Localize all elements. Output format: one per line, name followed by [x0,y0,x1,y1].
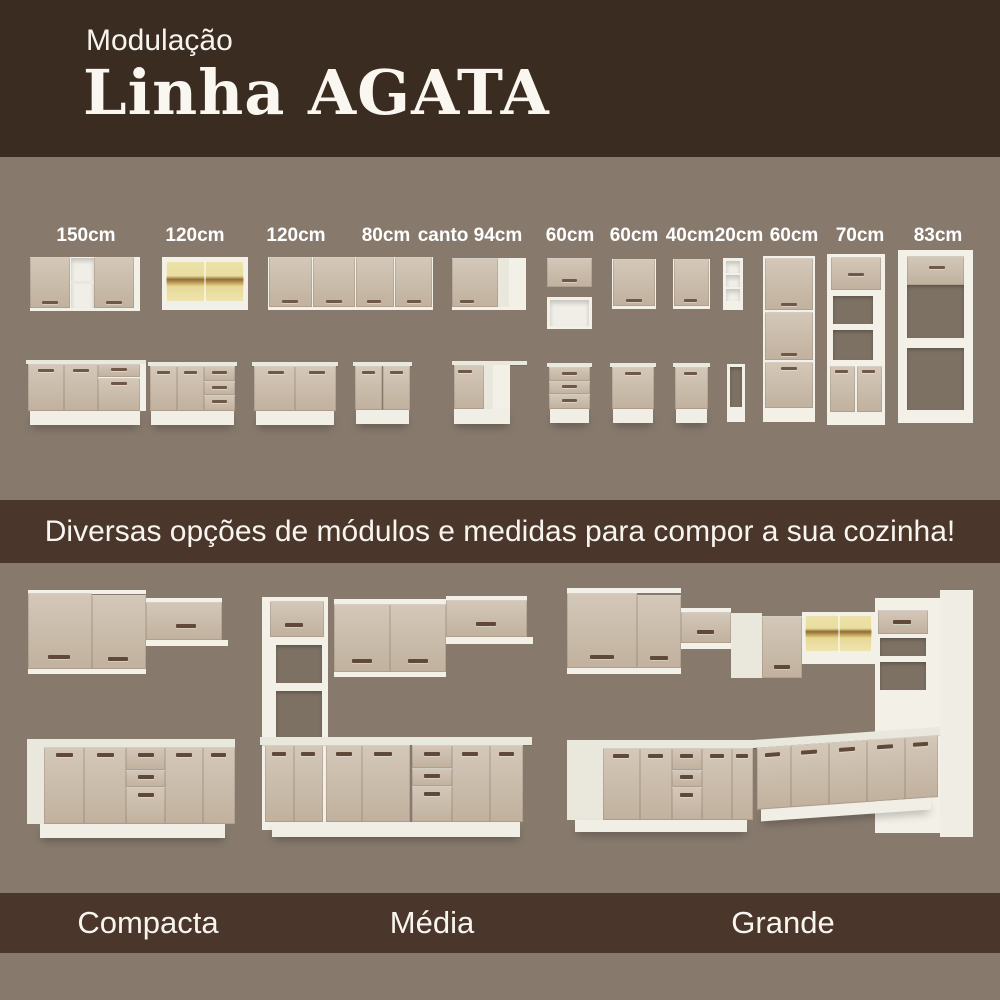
kitchen-media [255,585,540,840]
kitchen-label-grande: Grande [731,905,834,941]
size-label-60cm-a: 60cm [546,225,595,247]
module-wall-150cm [30,257,140,311]
size-label-70cm: 70cm [836,225,885,247]
kitchen-label-compacta: Compacta [77,905,218,941]
module-tall-83cm [898,250,973,423]
size-label-120cm-b: 120cm [266,225,325,247]
module-base-60cm-door [610,363,656,423]
module-tall-60cm [763,256,815,422]
module-wall-120cm-glass [162,257,248,310]
module-shelf-20cm [723,258,743,310]
size-label-80cm: 80cm [362,225,411,247]
module-wall-60cm-flip [547,258,592,287]
size-label-83cm: 83cm [914,225,963,247]
kitchen-label-media: Média [390,905,474,941]
header: Modulação Linha AGATA [0,0,1000,157]
module-wall-40cm [673,259,710,309]
module-wall-60cm-niche [547,297,592,329]
size-label-canto: canto 94cm [418,225,523,247]
size-label-120cm-a: 120cm [165,225,224,247]
size-label-60cm-b: 60cm [610,225,659,247]
header-title: Linha AGATA [83,56,550,129]
module-base-canto-94cm [452,361,527,424]
size-label-40cm: 40cm [666,225,715,247]
module-tall-70cm [827,254,885,425]
module-base-20cm [727,364,745,422]
poster: Modulação Linha AGATA 150cm 120cm 120cm … [0,0,1000,1000]
module-base-40cm [673,363,710,423]
kitchen-compacta [25,585,240,840]
module-wall-canto-94cm [452,258,526,310]
module-base-80cm [353,362,412,424]
module-wall-120cm [268,257,356,310]
banner-band: Diversas opções de módulos e medidas par… [0,500,1000,563]
size-label-60cm-c: 60cm [770,225,819,247]
size-label-20cm: 20cm [715,225,764,247]
module-wall-80cm [355,257,433,310]
kitchen-grande [560,580,980,842]
header-kicker: Modulação [86,24,233,58]
module-base-120cm-drawers [148,362,237,425]
banner-text: Diversas opções de módulos e medidas par… [45,515,956,549]
kitchen-grande-base-right [753,715,940,832]
module-base-150cm [26,360,146,425]
size-label-150cm: 150cm [56,225,115,247]
module-base-60cm-drawers [547,363,592,423]
module-base-120cm-doors [252,362,338,425]
module-wall-60cm-door [612,259,656,309]
